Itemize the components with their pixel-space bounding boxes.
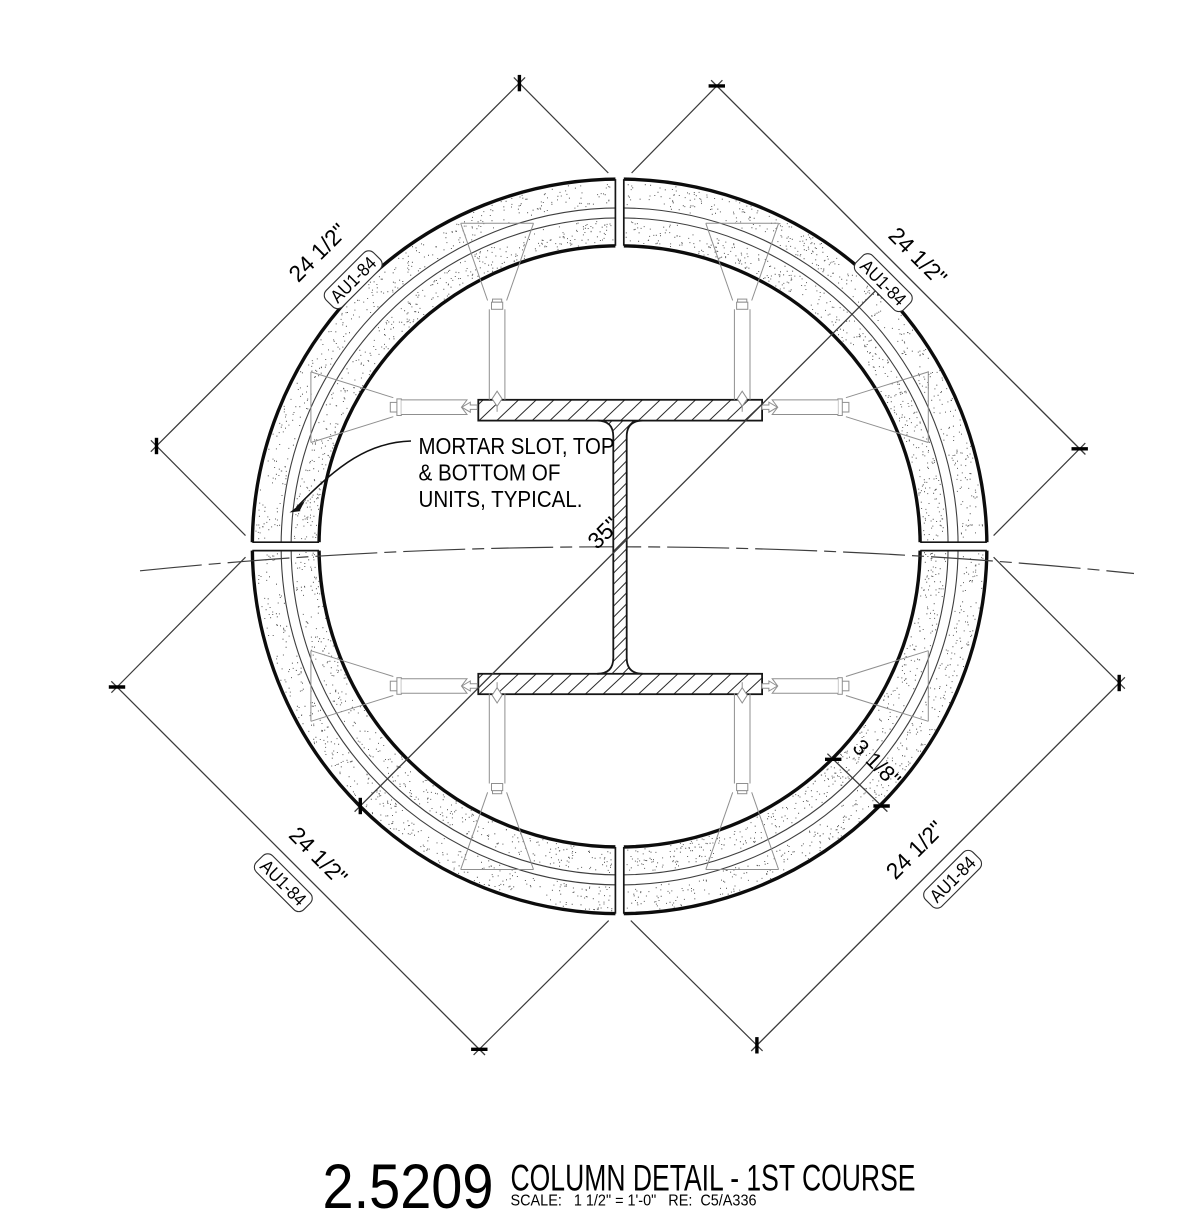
svg-text:SCALE: 1 1/2" = 1'-0" RE:: SCALE: 1 1/2" = 1'-0" RE: C5/A336 <box>511 1193 757 1210</box>
svg-text:& BOTTOM OF: & BOTTOM OF <box>419 460 561 486</box>
svg-text:AU1-84: AU1-84 <box>326 252 380 306</box>
svg-text:AU1-84: AU1-84 <box>256 855 310 909</box>
svg-text:AU1-84: AU1-84 <box>925 852 979 906</box>
svg-text:UNITS, TYPICAL.: UNITS, TYPICAL. <box>419 486 583 512</box>
svg-text:24 1/2": 24 1/2" <box>881 816 950 885</box>
svg-text:2.5209: 2.5209 <box>323 1152 494 1222</box>
svg-text:MORTAR SLOT, TOP: MORTAR SLOT, TOP <box>419 433 615 459</box>
